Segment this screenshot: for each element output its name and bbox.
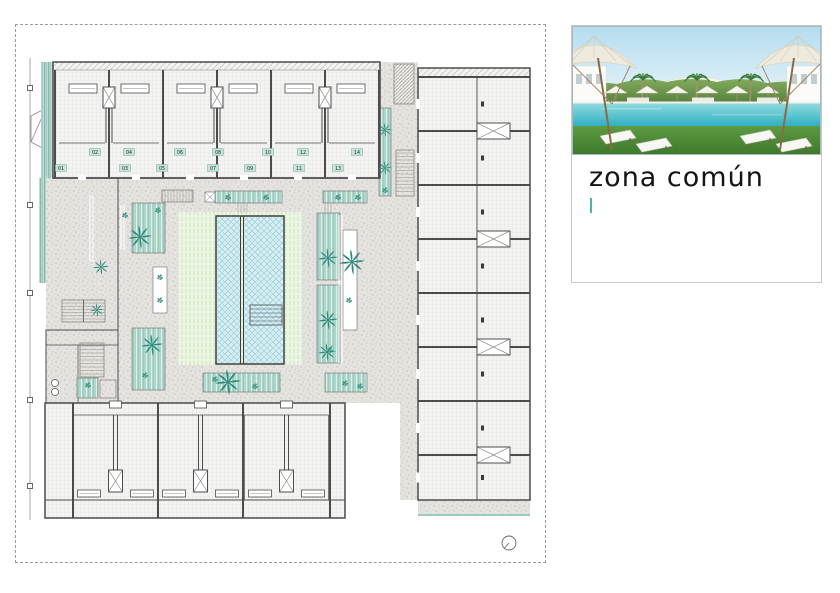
floor-plan-graphics	[28, 58, 531, 550]
unit-number: 04	[126, 150, 132, 156]
unit-number: 03	[122, 166, 128, 172]
floor-plan-sheet: 0204060810121401030507091113	[15, 24, 546, 563]
page: { "plan": { "units_upper": ["02","04","0…	[0, 0, 840, 593]
unit-number: 10	[265, 150, 271, 156]
unit-number: 12	[300, 150, 306, 156]
common-zone-photo	[572, 26, 821, 155]
unit-number: 13	[335, 166, 341, 172]
unit-number: 09	[247, 166, 253, 172]
unit-number: 06	[177, 150, 183, 156]
card-title: zona común	[589, 162, 821, 193]
unit-number: 02	[92, 150, 98, 156]
pool-render	[572, 26, 821, 155]
unit-number: 05	[159, 166, 165, 172]
text-cursor[interactable]	[590, 198, 592, 213]
unit-number: 08	[215, 150, 221, 156]
unit-number: 11	[296, 166, 302, 172]
common-zone-card: zona común	[571, 25, 822, 283]
unit-number: 07	[210, 166, 216, 172]
floor-plan-svg: 0204060810121401030507091113	[16, 25, 545, 562]
unit-number: 14	[354, 150, 360, 156]
unit-number: 01	[58, 166, 64, 172]
